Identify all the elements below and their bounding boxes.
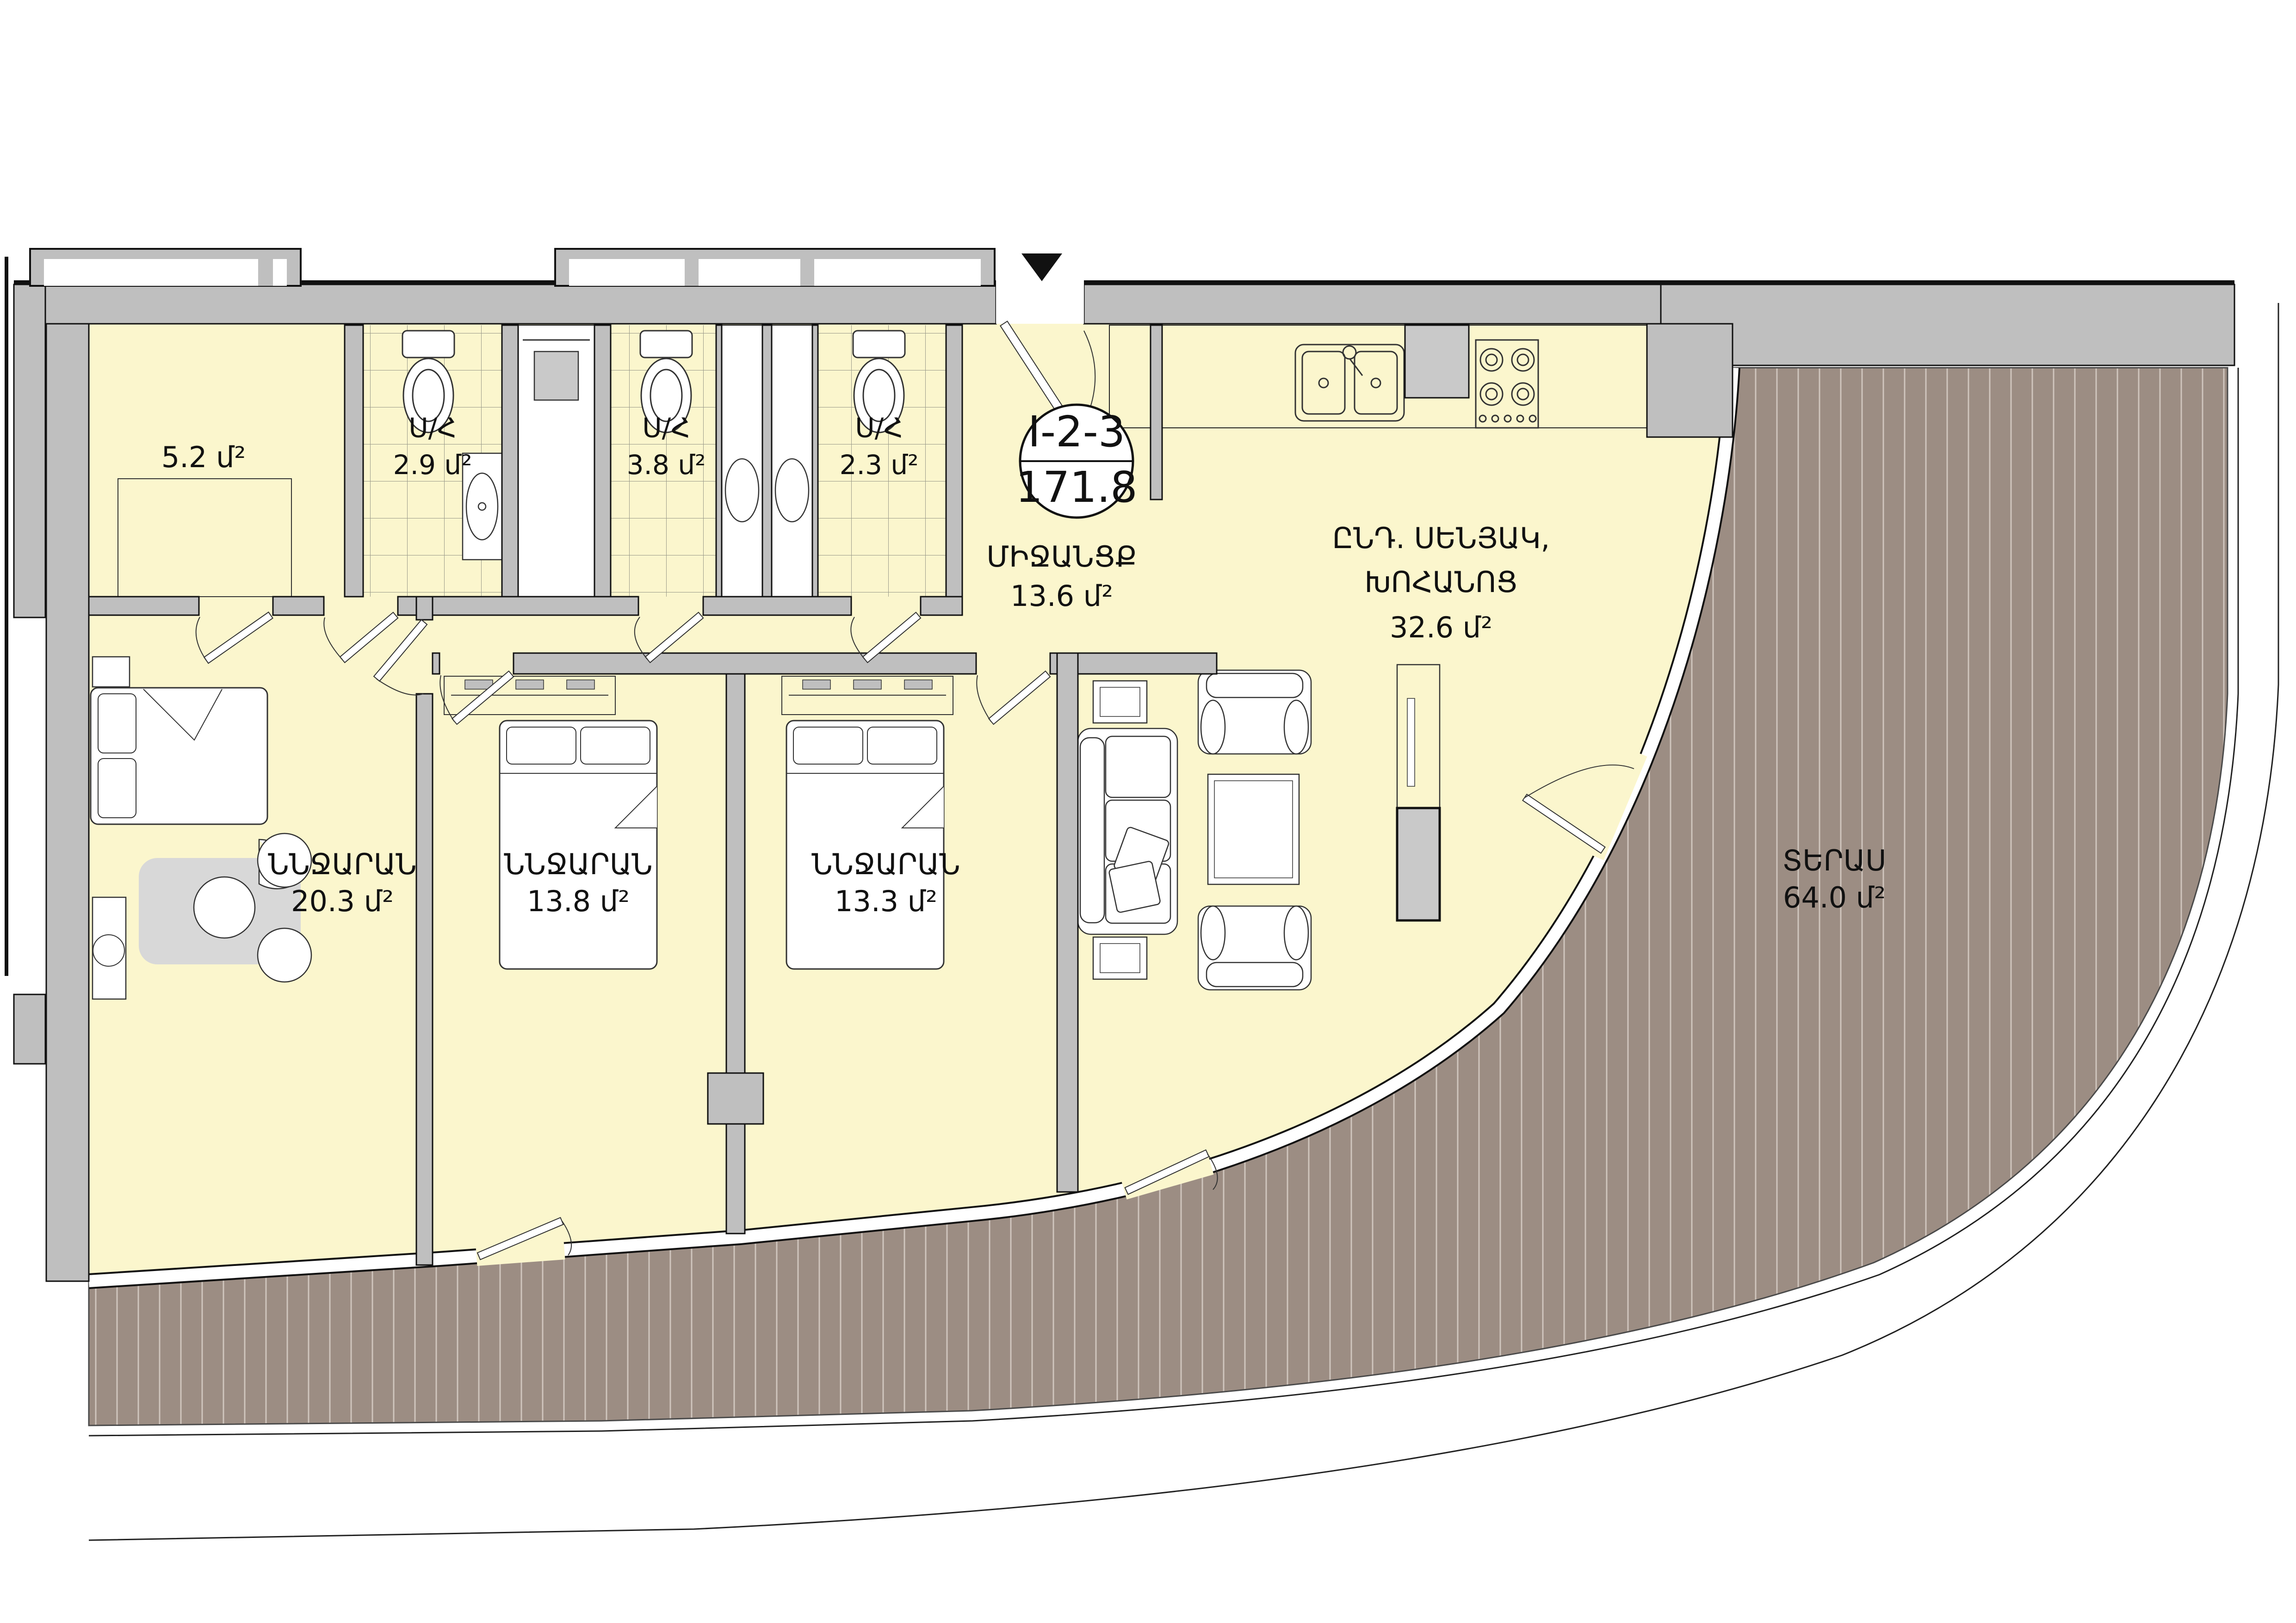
wall-h1 <box>921 597 962 615</box>
wall-left-outer-line <box>5 257 8 976</box>
corridor-area-label: 13.6 մ² <box>1010 579 1113 613</box>
bedroom1-area-label: 20.3 մ² <box>291 884 394 918</box>
window-mullion <box>800 259 814 286</box>
pillow <box>793 727 863 764</box>
wall-v4a <box>716 325 722 597</box>
wall-v7 <box>416 694 433 1265</box>
cabinet <box>1397 808 1440 920</box>
wall-h2 <box>433 653 439 674</box>
bath3-name-label: Ս/Հ <box>855 412 903 444</box>
wall-h1 <box>398 597 638 615</box>
entrance-opening <box>996 278 1084 324</box>
window-glass <box>569 259 981 286</box>
wall-v7 <box>416 597 433 620</box>
wall-v5 <box>946 325 962 597</box>
unit-badge: I-2-3 171.8 <box>1015 405 1137 518</box>
pillow <box>507 727 576 764</box>
pillow <box>867 727 937 764</box>
wall-v1 <box>345 325 363 597</box>
floor-plan-page: I-2-3 171.8 5.2 մ² Ս/Հ 2.9 մ² Ս/Հ 3.8 մ²… <box>0 0 2296 1623</box>
wall-corridor-kitchen <box>1151 325 1162 500</box>
bedroom2-area-label: 13.8 մ² <box>527 884 630 918</box>
wall-h1 <box>89 597 199 615</box>
round-table <box>194 877 255 938</box>
hanger-icon <box>803 680 830 689</box>
unit-code: I-2-3 <box>1028 407 1126 457</box>
coffee-table <box>1208 774 1299 884</box>
tv-unit <box>1397 665 1440 808</box>
unit-area: 171.8 <box>1015 463 1137 512</box>
bedroom3-furniture <box>782 676 953 969</box>
window-glass <box>44 259 287 286</box>
pillow <box>581 727 650 764</box>
stove-icon <box>1476 340 1538 428</box>
bedroom3-name-label: ՆՆՋԱՐԱՆ <box>811 847 960 881</box>
sofa <box>1078 728 1177 934</box>
wall-v4c <box>812 325 818 597</box>
bath1-name-label: Ս/Հ <box>408 412 457 444</box>
bath3-area-label: 2.3 մ² <box>840 449 919 481</box>
sink-niche-left <box>722 325 762 597</box>
wall-living-top <box>1078 653 1217 674</box>
kitchen-counter <box>1109 325 1647 428</box>
pillow <box>98 694 136 753</box>
floor-plan-svg: I-2-3 171.8 5.2 մ² Ս/Հ 2.9 մ² Ս/Հ 3.8 մ²… <box>0 0 2296 1623</box>
wall-v2 <box>502 325 518 597</box>
wall-top-mid <box>1084 284 1661 324</box>
wall-v3 <box>594 325 611 597</box>
wall-v8 <box>726 674 745 1234</box>
stool <box>93 935 124 966</box>
kitchen-column <box>1405 325 1469 398</box>
bath2-name-label: Ս/Հ <box>642 412 690 444</box>
wall-h1 <box>703 597 851 615</box>
hanger-icon <box>904 680 932 689</box>
washing-machine-icon <box>534 352 578 400</box>
armchair <box>1198 906 1311 990</box>
wall-v9 <box>1057 653 1078 1192</box>
corridor-name-label: ՄԻՋԱՆՑՔ <box>986 540 1137 574</box>
hanger-icon <box>567 680 594 689</box>
terrace-name-label: ՏԵՐԱՍ <box>1782 844 1887 877</box>
tv-screen <box>1407 698 1415 786</box>
living-name-label-1: ԸՆԴ. ՍԵՆՅԱԿ, <box>1332 521 1550 555</box>
wall-h2 <box>514 653 976 674</box>
wall-top-edge <box>14 280 2234 284</box>
nightstand <box>93 657 130 687</box>
wall-left-outer-band <box>14 284 45 617</box>
wall-h1 <box>273 597 324 615</box>
window-mullion <box>685 259 699 286</box>
window-mullion <box>258 259 273 286</box>
terrace-area-label: 64.0 մ² <box>1783 881 1886 914</box>
bedroom3-area-label: 13.3 մ² <box>835 884 937 918</box>
hanger-icon <box>516 680 544 689</box>
storage-area-label: 5.2 մ² <box>161 440 246 474</box>
chair <box>258 928 311 982</box>
bedroom1-name-label: ՆՆՋԱՐԱՆ <box>268 847 416 881</box>
wall-left-pier <box>14 994 45 1064</box>
wall-v4b <box>762 325 772 597</box>
wall-top-terrace <box>1661 284 2234 365</box>
living-name-label-2: ԽՈՀԱՆՈՑ <box>1364 565 1517 599</box>
sink-niche-right <box>772 325 812 597</box>
hanger-icon <box>854 680 881 689</box>
armchair <box>1198 670 1311 754</box>
wall-left <box>46 324 89 1281</box>
bedroom2-name-label: ՆՆՋԱՐԱՆ <box>504 847 652 881</box>
bath2-area-label: 3.8 մ² <box>627 449 706 481</box>
wall-pier-ne <box>1647 324 1733 437</box>
wall-top-left <box>14 284 996 324</box>
bath1-area-label: 2.9 մ² <box>393 449 472 481</box>
living-area-label: 32.6 մ² <box>1390 611 1492 644</box>
wall-v8-closet <box>708 1073 763 1124</box>
pillow <box>98 759 136 818</box>
